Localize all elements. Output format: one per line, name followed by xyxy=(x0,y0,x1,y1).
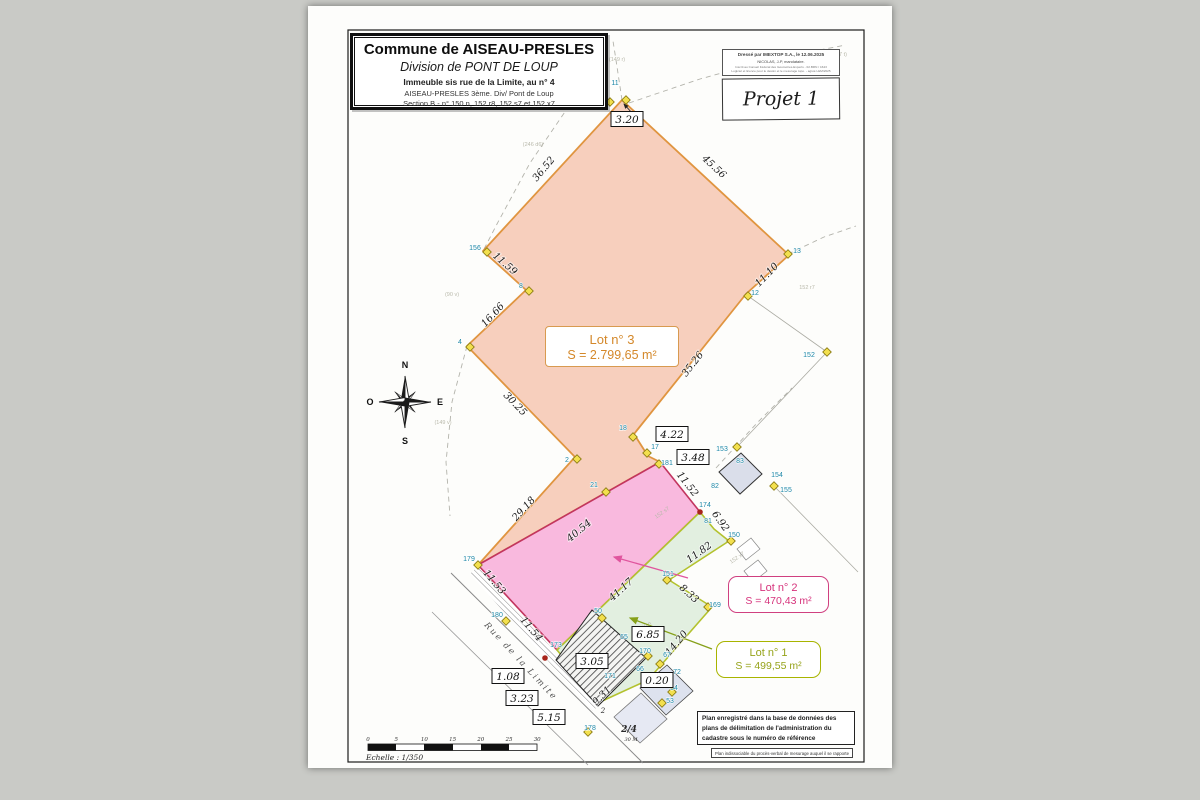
faded-parcel-ref: 152 r7 xyxy=(799,285,815,291)
point-number: 18 xyxy=(619,425,627,432)
point-number: 8 xyxy=(519,283,523,290)
lot1-name: Lot n° 1 xyxy=(717,647,820,659)
point-number: 180 xyxy=(491,612,503,619)
point-number: 178 xyxy=(584,725,596,732)
lot1-label: Lot n° 1 S = 499,55 m² xyxy=(716,641,821,678)
point-number: 12 xyxy=(751,290,759,297)
point-number: 152 xyxy=(803,352,815,359)
scale-tick: 15 xyxy=(449,737,456,743)
survey-point-dot xyxy=(542,655,548,661)
point-number: 81 xyxy=(704,518,712,525)
scale-tick: 10 xyxy=(421,737,428,743)
point-number: 2 xyxy=(565,457,569,464)
scanned-plan-page: N S E O Rue de la Limite Echelle : 1/350… xyxy=(0,0,1200,800)
point-number: 174 xyxy=(699,502,711,509)
lot2-area: S = 470,43 m² xyxy=(729,595,828,607)
point-number: 173 xyxy=(550,642,562,649)
surveyor-stamp: Dressé par IMEXTOP S.A., le 12.06.2025 N… xyxy=(722,49,840,76)
project-label: Projet 1 xyxy=(722,77,840,120)
compass-rose xyxy=(379,376,431,428)
point-number: 151 xyxy=(662,571,674,578)
misc-label: 2 xyxy=(600,707,606,715)
boxed-measurement: 3.20 xyxy=(615,114,639,126)
point-number: 83 xyxy=(736,458,744,465)
boxed-measurement: 3.05 xyxy=(580,656,604,668)
point-number: 66 xyxy=(636,666,644,673)
boxed-measurement: 5.15 xyxy=(537,712,561,724)
scale-tick: 30 xyxy=(534,737,541,743)
point-number: 179 xyxy=(463,556,475,563)
division-detail: AISEAU-PRESLES 3ème. Div/ Pont de Loup xyxy=(355,89,603,98)
division-subtitle: Division de PONT DE LOUP xyxy=(355,60,603,76)
section-parcels: Section B - n° 150 n, 152 r8, 152 s7 et … xyxy=(355,99,603,108)
scale-bar: Echelle : 1/350 xyxy=(365,744,537,762)
property-address: Immeuble sis rue de la Limite, au n° 4 xyxy=(355,77,603,88)
boxed-measurement: 0.20 xyxy=(645,675,669,687)
boxed-measurement: 4.22 xyxy=(659,429,684,441)
survey-point-dot xyxy=(697,509,703,515)
faded-parcel-ref: 152 x7 xyxy=(729,551,746,565)
lot2-name: Lot n° 2 xyxy=(729,582,828,594)
stamp-drawn-by: Dressé par IMEXTOP S.A., le 12.06.2025 xyxy=(723,52,839,59)
lot3-label: Lot n° 3 S = 2.799,65 m² xyxy=(545,326,679,367)
point-number: 181 xyxy=(661,460,673,467)
boxed-measurement: 6.85 xyxy=(636,629,660,641)
annex-note: Plan indissociable du procès-verbal de m… xyxy=(711,748,853,758)
title-block: Commune de AISEAU-PRESLES Division de PO… xyxy=(350,33,608,110)
point-number: 50 xyxy=(594,608,602,615)
cadastre-registration-note: Plan enregistré dans la base de données … xyxy=(697,711,855,745)
compass-south-label: S xyxy=(402,436,408,446)
misc-label: 30 M xyxy=(624,737,638,743)
compass-west-label: O xyxy=(366,397,373,407)
scale-tick: 25 xyxy=(505,737,513,743)
point-number: 67 xyxy=(663,652,671,659)
point-number: 11 xyxy=(611,80,618,87)
faded-parcel-ref: (149 v) xyxy=(434,420,451,426)
lot3-name: Lot n° 3 xyxy=(546,332,678,347)
point-number: 150 xyxy=(728,532,740,539)
point-number: 82 xyxy=(711,483,719,490)
point-number: 72 xyxy=(673,669,681,676)
point-number: 4 xyxy=(458,339,462,346)
point-number: 65 xyxy=(620,634,628,641)
faded-parcel-ref: (246 d6) xyxy=(523,142,544,148)
lot3-area: S = 2.799,65 m² xyxy=(546,348,678,362)
point-number: 21 xyxy=(590,482,598,489)
boxed-measurement: 3.48 xyxy=(681,452,705,464)
survey-drawing: N S E O Rue de la Limite Echelle : 1/350… xyxy=(0,0,1200,800)
point-number: 156 xyxy=(469,245,481,252)
scale-label: Echelle : 1/350 xyxy=(365,753,423,762)
point-number: 17 xyxy=(651,444,659,451)
point-number: 155 xyxy=(780,487,792,494)
boxed-measurement: 3.23 xyxy=(510,693,534,705)
scale-tick: 20 xyxy=(476,737,484,743)
misc-label: 2/4 xyxy=(620,725,637,735)
commune-title: Commune de AISEAU-PRESLES xyxy=(355,41,603,60)
title-block-inner: Commune de AISEAU-PRESLES Division de PO… xyxy=(354,37,604,106)
scale-tick: 5 xyxy=(394,737,398,743)
point-number: 171 xyxy=(604,673,616,680)
compass-north-label: N xyxy=(402,360,409,370)
boxed-measurement: 1.08 xyxy=(496,671,520,683)
neighbour-lines-solid xyxy=(737,296,858,572)
scale-tick: 0 xyxy=(366,737,370,743)
point-number: 53 xyxy=(666,698,674,705)
faded-parcel-ref: (149 r) xyxy=(609,57,625,63)
point-number: 170 xyxy=(639,648,651,655)
faded-parcel-ref: (90 v) xyxy=(445,292,459,298)
compass-east-label: E xyxy=(437,397,443,407)
point-number: 169 xyxy=(709,602,721,609)
lot1-area: S = 499,55 m² xyxy=(717,660,820,672)
point-number: 13 xyxy=(793,248,801,255)
stamp-license: Logiciel et licence pour le dessin et le… xyxy=(723,69,839,74)
point-number: 153 xyxy=(716,446,728,453)
point-number: 154 xyxy=(771,472,783,479)
lot2-label: Lot n° 2 S = 470,43 m² xyxy=(728,576,829,613)
